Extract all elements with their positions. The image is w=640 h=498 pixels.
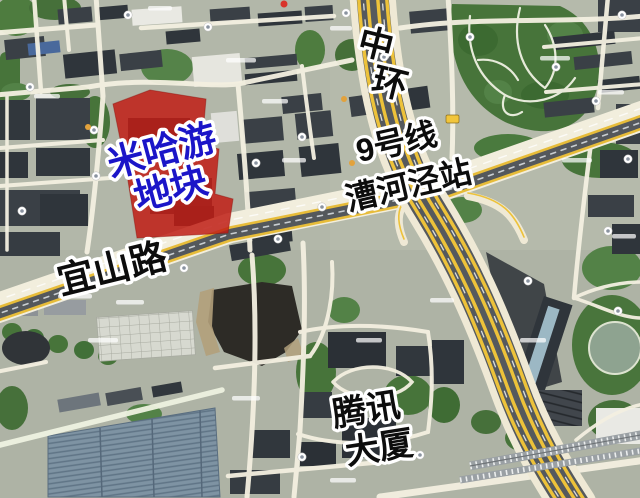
grid-building bbox=[97, 311, 196, 362]
dark-round-structure bbox=[2, 331, 50, 365]
pond bbox=[589, 322, 640, 374]
map-canvas: 米哈游 地块 中 环 9号线 漕河泾站 宜山路 腾讯 大厦 bbox=[0, 0, 640, 498]
poi-marker-red bbox=[281, 1, 288, 8]
bus-icon bbox=[446, 115, 459, 123]
satellite-map: 米哈游 地块 中 环 9号线 漕河泾站 宜山路 腾讯 大厦 bbox=[0, 0, 640, 498]
